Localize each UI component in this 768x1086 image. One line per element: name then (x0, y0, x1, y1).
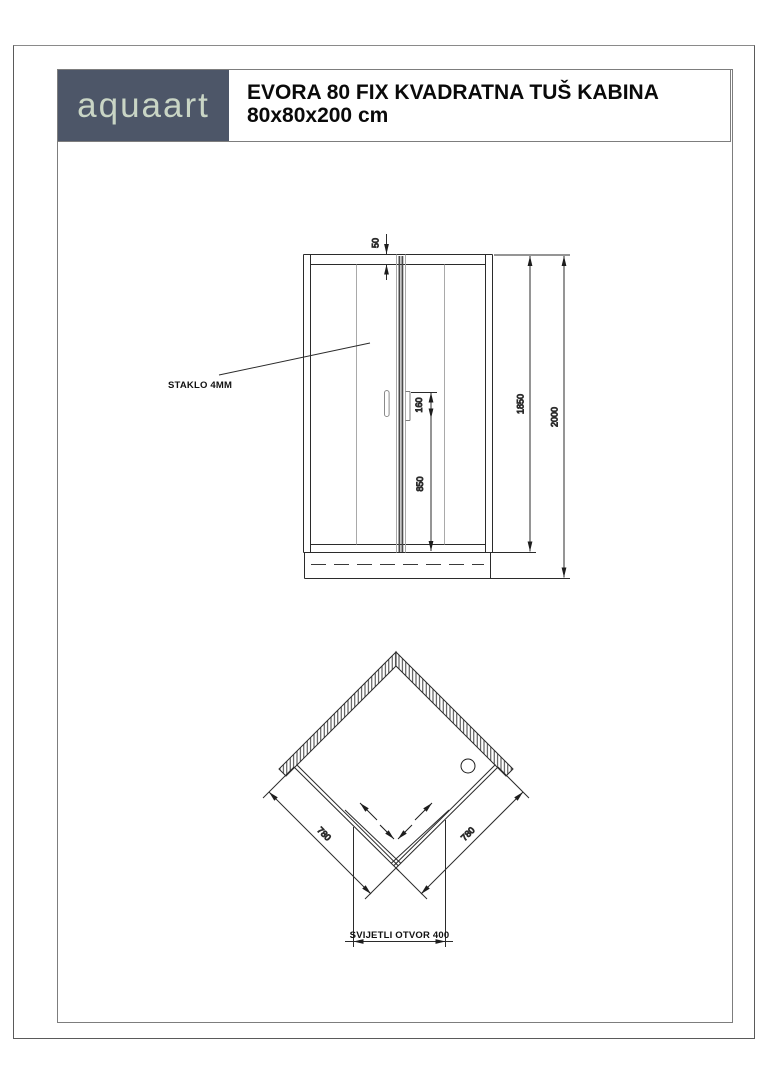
dim-cabin-height-1850: 1850 (516, 256, 531, 552)
dim-side-right-780: 780 (396, 767, 529, 899)
dim-label-780-right: 780 (459, 825, 477, 843)
dim-total-height-2000: 2000 (550, 256, 565, 578)
slide-direction-arrows (360, 803, 432, 839)
door-edge-bracket (406, 392, 411, 421)
dim-label-50: 50 (371, 238, 381, 248)
wall-right (396, 652, 513, 776)
glass-note-label: STAKLO 4MM (168, 380, 232, 391)
front-frame (304, 255, 493, 553)
dim-label-160: 160 (414, 397, 424, 412)
dim-side-left-780: 780 (263, 767, 396, 899)
wall-left (279, 652, 396, 776)
dim-label-2000: 2000 (550, 407, 560, 427)
glass-note: STAKLO 4MM (168, 343, 370, 391)
dim-top-profile-50: 50 (371, 234, 387, 280)
dim-label-850: 850 (415, 476, 425, 491)
shower-tray (305, 553, 493, 579)
dim-label-clear-opening: SVIJETLI OTVOR 400 (350, 930, 450, 941)
glass-note-leader-line (219, 343, 370, 375)
center-door-profile (399, 256, 402, 552)
dim-label-780-left: 780 (315, 825, 333, 843)
sliding-doors (294, 765, 498, 872)
datasheet-page: aquaart EVORA 80 FIX KVADRATNA TUŠ KABIN… (0, 0, 768, 1086)
dim-handle-height-850: 850 (415, 419, 431, 552)
dim-handle-160: 160 (411, 393, 437, 419)
door-handle (385, 391, 390, 417)
front-view: 50 160 850 1850 (168, 234, 570, 579)
technical-drawing: 50 160 850 1850 (0, 0, 768, 1086)
dim-label-1850: 1850 (516, 394, 526, 414)
top-view: 780 780 SVIJETLI OTVOR 400 (263, 652, 529, 947)
drain-circle (461, 759, 475, 773)
